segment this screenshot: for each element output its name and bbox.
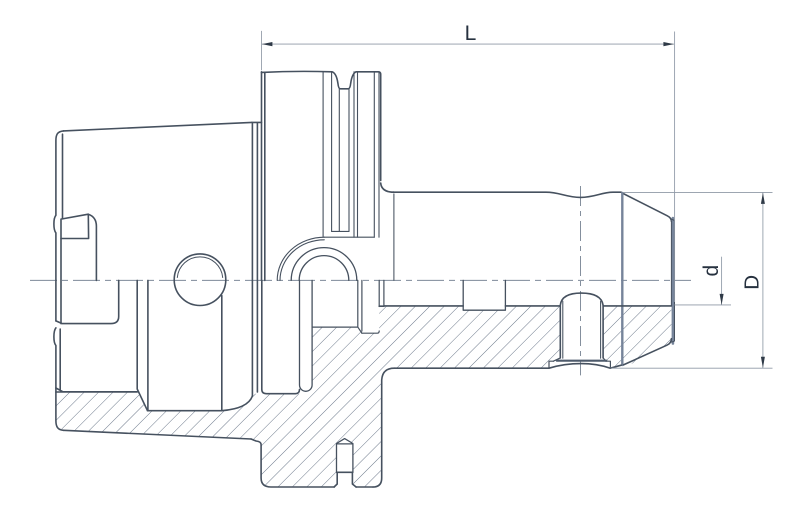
svg-text:L: L [465, 22, 477, 45]
svg-text:D: D [740, 275, 763, 290]
svg-text:d: d [700, 265, 723, 277]
